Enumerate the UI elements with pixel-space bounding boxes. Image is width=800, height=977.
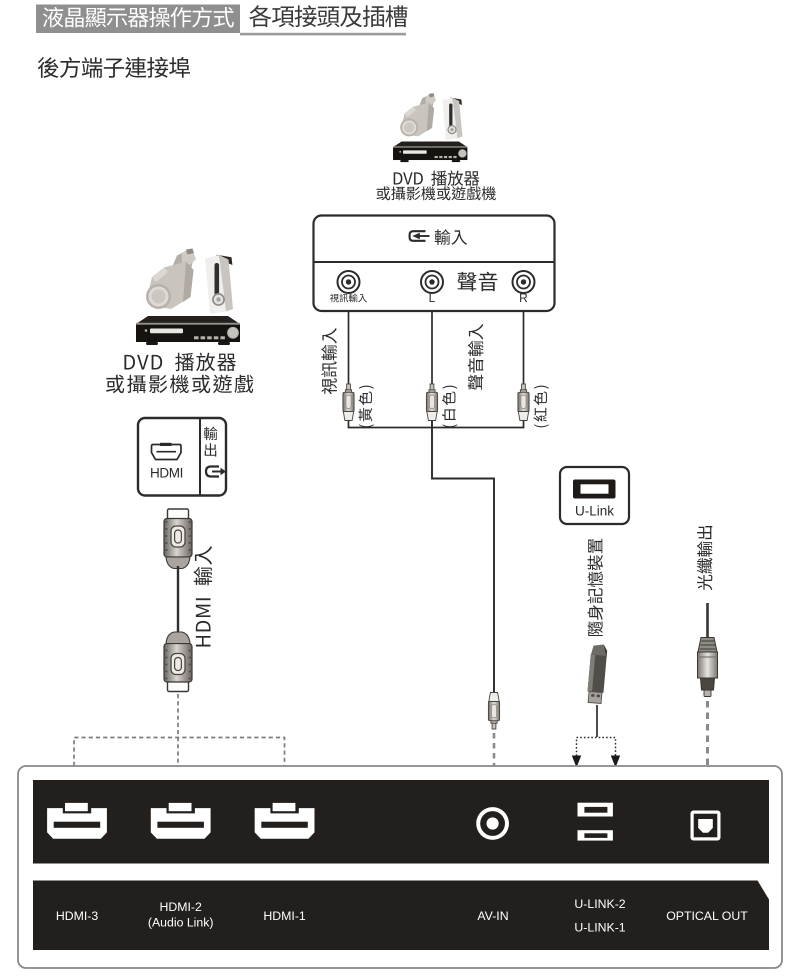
svg-text:U-LINK-1: U-LINK-1	[574, 921, 625, 935]
svg-text:(Audio Link): (Audio Link)	[148, 916, 214, 930]
svg-text:OPTICAL OUT: OPTICAL OUT	[666, 909, 748, 923]
svg-text:AV-IN: AV-IN	[477, 909, 508, 923]
svg-text:HDMI-2: HDMI-2	[160, 900, 203, 914]
svg-text:HDMI-3: HDMI-3	[56, 909, 99, 923]
svg-text:U-Link: U-Link	[575, 504, 614, 519]
svg-text:R: R	[519, 291, 528, 305]
svg-text:L: L	[429, 291, 436, 305]
svg-text:HDMI: HDMI	[150, 466, 183, 481]
svg-text:U-LINK-2: U-LINK-2	[574, 897, 625, 911]
svg-text:HDMI-1: HDMI-1	[263, 909, 306, 923]
